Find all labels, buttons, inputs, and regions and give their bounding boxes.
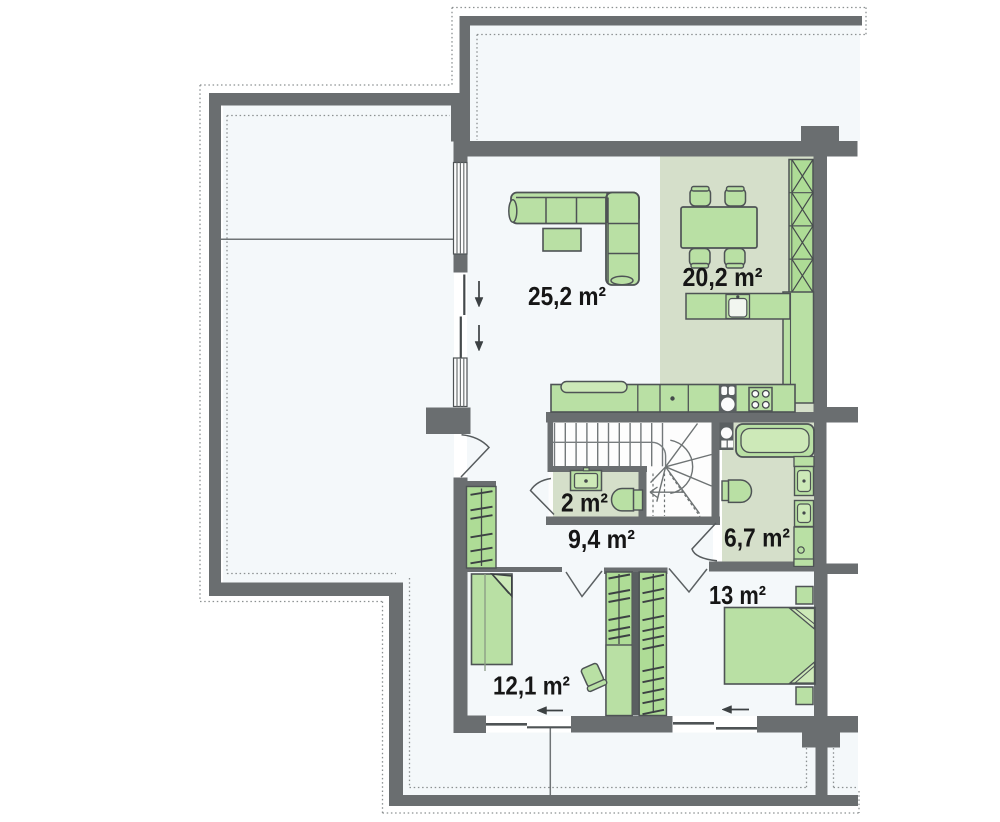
svg-text:9,4 m²: 9,4 m² bbox=[568, 524, 635, 554]
svg-text:25,2 m²: 25,2 m² bbox=[528, 281, 606, 311]
svg-text:12,1 m²: 12,1 m² bbox=[493, 671, 570, 701]
svg-text:2 m²: 2 m² bbox=[561, 488, 608, 518]
svg-text:13 m²: 13 m² bbox=[709, 580, 766, 610]
svg-text:6,7 m²: 6,7 m² bbox=[724, 523, 790, 553]
svg-text:20,2 m²: 20,2 m² bbox=[683, 262, 763, 292]
